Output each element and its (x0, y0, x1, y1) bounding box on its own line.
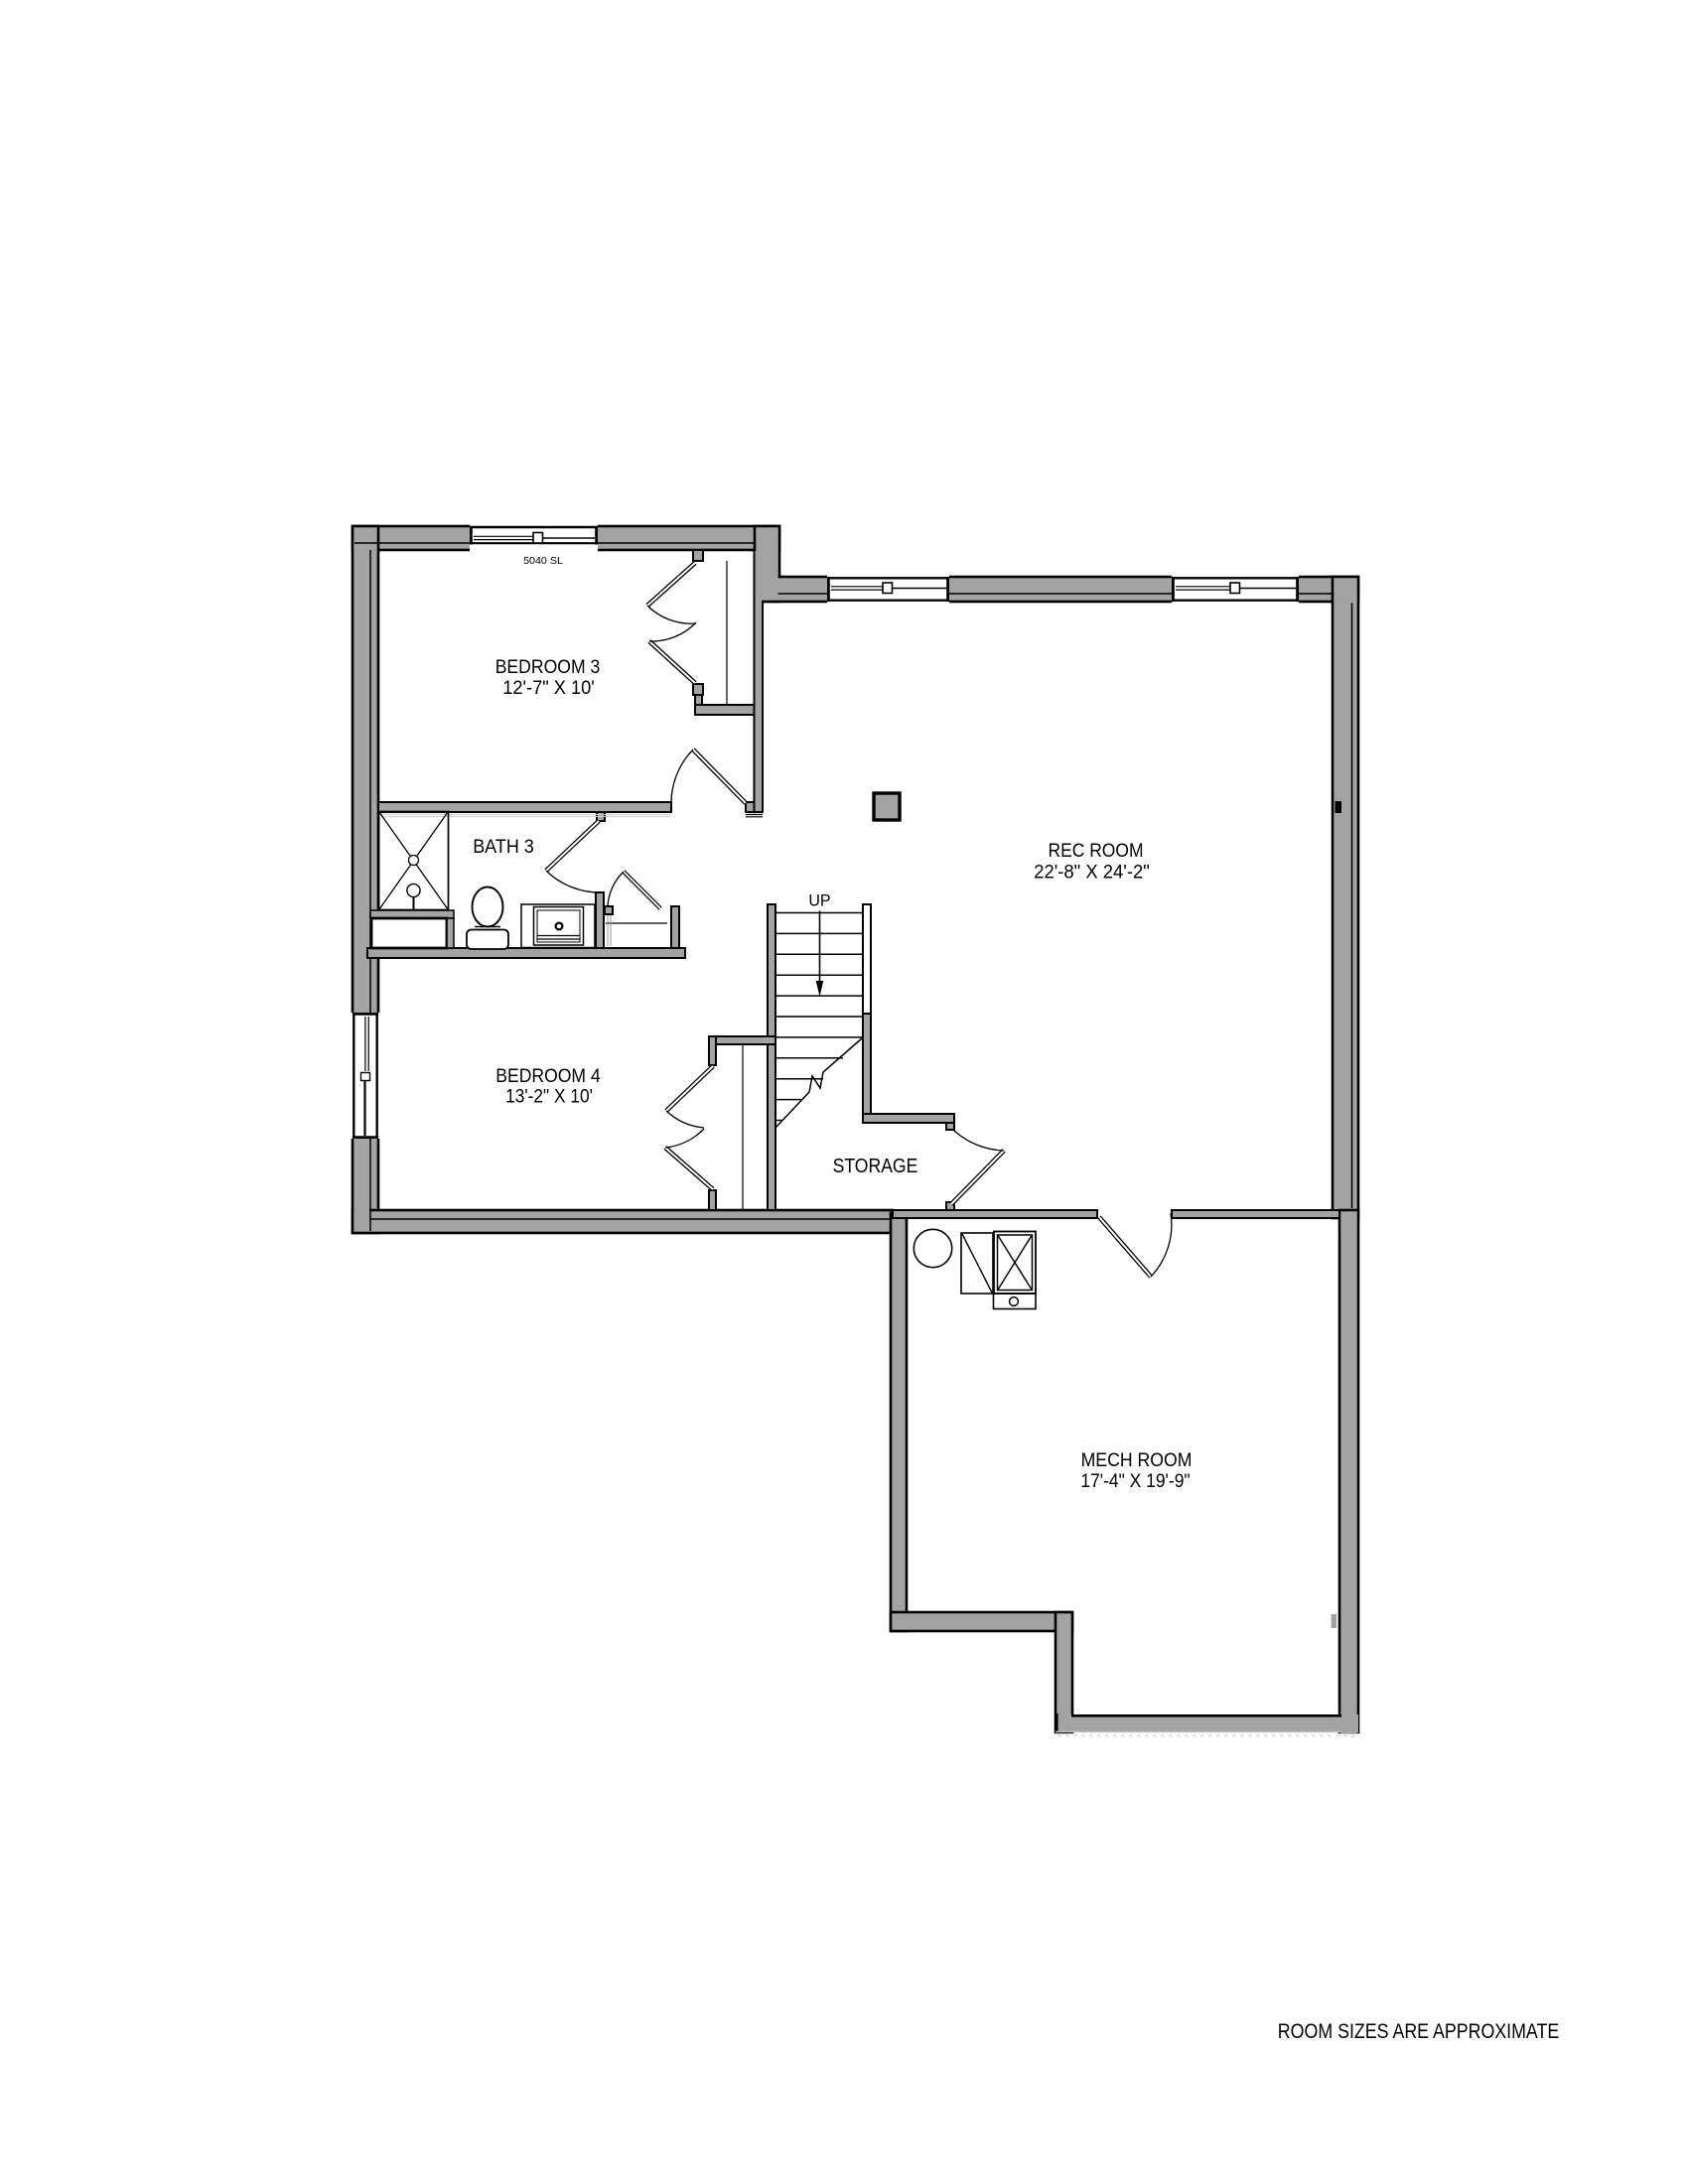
svg-text:17'-4" X 19'-9": 17'-4" X 19'-9" (1080, 1471, 1190, 1492)
svg-text:13'-2" X 10': 13'-2" X 10' (505, 1087, 593, 1108)
svg-text:BEDROOM 4: BEDROOM 4 (495, 1066, 601, 1087)
svg-text:MECH ROOM: MECH ROOM (1081, 1450, 1193, 1471)
svg-text:12'-7" X 10': 12'-7" X 10' (502, 678, 595, 699)
svg-text:REC ROOM: REC ROOM (1049, 841, 1144, 862)
svg-text:BATH 3: BATH 3 (473, 837, 534, 858)
svg-text:22'-8" X 24'-2": 22'-8" X 24'-2" (1034, 863, 1150, 884)
svg-text:ROOM SIZES ARE APPROXIMATE: ROOM SIZES ARE APPROXIMATE (1278, 2020, 1559, 2043)
svg-text:STORAGE: STORAGE (833, 1156, 918, 1177)
svg-text:UP: UP (808, 891, 830, 910)
svg-text:BEDROOM 3: BEDROOM 3 (495, 657, 601, 678)
svg-text:5040 SL: 5040 SL (523, 555, 563, 567)
